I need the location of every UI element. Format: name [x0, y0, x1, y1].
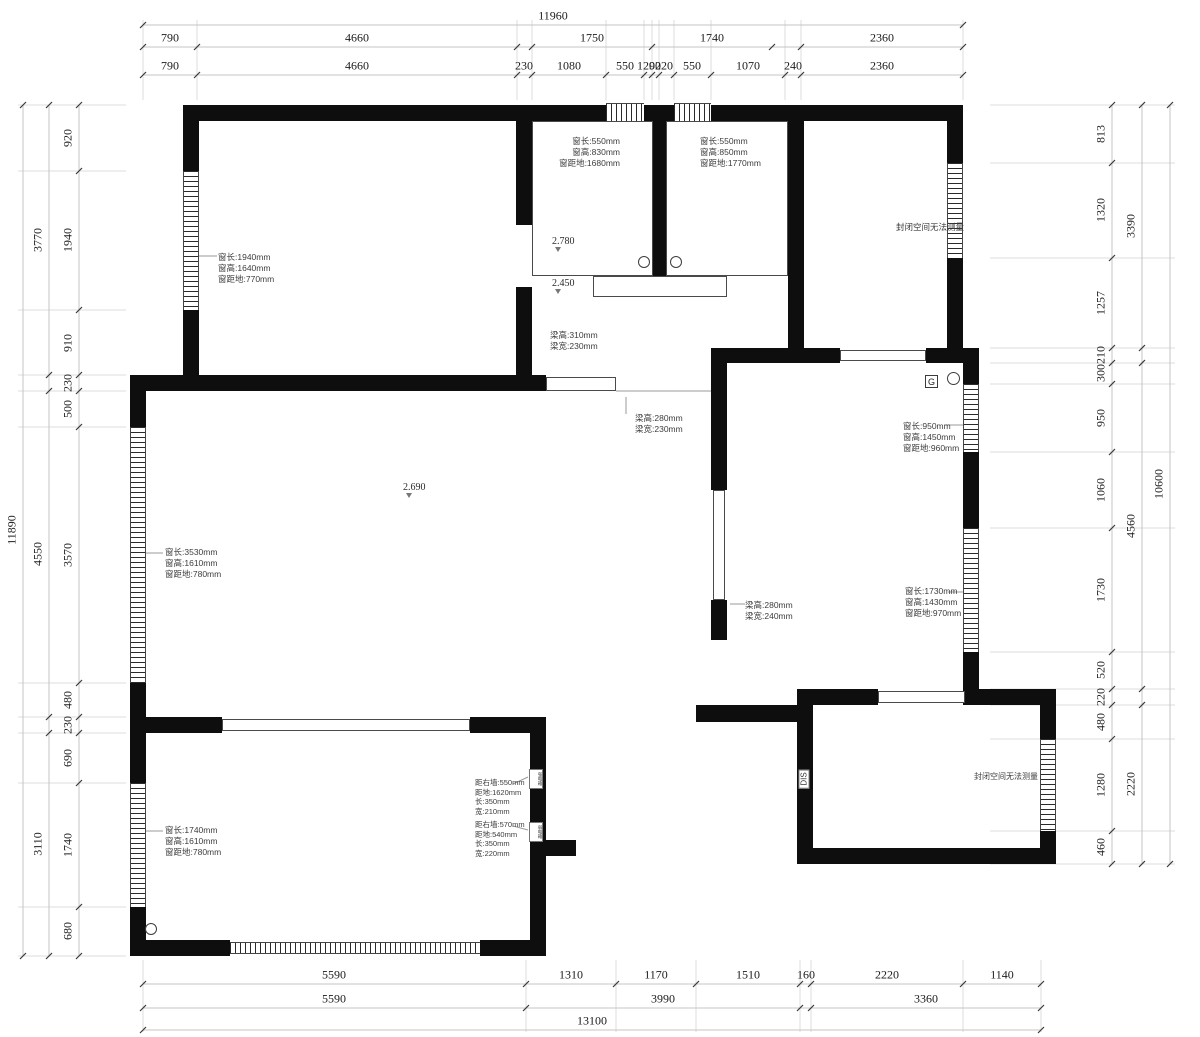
window-closed-space-bottom: [1040, 739, 1056, 831]
window-right-lower: [963, 528, 979, 652]
beam3-outline: [713, 490, 725, 600]
wall-segment: [711, 363, 727, 490]
opening-outline: [840, 350, 926, 361]
strong-current-box: 强电箱: [529, 769, 543, 789]
dim-label: 3990: [651, 992, 675, 1007]
pipe-circle: [145, 923, 157, 935]
dim-label: 1730: [1094, 578, 1109, 602]
dim-label: 910: [61, 334, 76, 352]
annotation-line: 梁高:280mm: [635, 413, 683, 424]
dim-label: 13100: [577, 1014, 607, 1029]
dim-label: 11960: [538, 9, 568, 24]
wall-segment: [516, 287, 532, 375]
annotation-line: 窗高:850mm: [700, 147, 761, 158]
dim-label: 1940: [61, 228, 76, 252]
annotation-line: 窗长:950mm: [903, 421, 959, 432]
wall-segment: [788, 105, 963, 121]
window-closed-space-top: [947, 163, 963, 258]
wall-segment: [470, 717, 546, 733]
dim-label: 1740: [61, 833, 76, 857]
annotation-line: 窗距地:780mm: [165, 847, 221, 858]
elevation-marker: 2.690: [403, 482, 426, 501]
annotation-line: 窗高:1430mm: [905, 597, 961, 608]
elevation-marker: 2.450: [552, 278, 575, 297]
annotation-line: 窗高:1640mm: [218, 263, 274, 274]
window-bottom-left-room: [130, 783, 146, 907]
elec-box-annotation-low: 距右墙:570mm 距地:540mm 长:350mm 宽:220mm: [475, 820, 525, 858]
dim-label: 460: [1094, 838, 1109, 856]
wall-segment: [644, 105, 674, 121]
wall-segment: [696, 705, 813, 722]
beam-annotation-3: 梁高:280mm 梁宽:240mm: [745, 600, 793, 622]
beam1-outline: [546, 377, 616, 391]
dim-label: 790: [161, 31, 179, 46]
dim-label: 950: [1094, 409, 1109, 427]
wall-segment: [963, 652, 979, 689]
annotation-line: 窗距地:1680mm: [540, 158, 620, 169]
annotation-line: 窗长:1730mm: [905, 586, 961, 597]
dim-label: 1140: [990, 968, 1014, 983]
annotation-line: 梁宽:230mm: [635, 424, 683, 435]
dim-label: 480: [1094, 713, 1109, 731]
beam-annotation-2: 梁高:280mm 梁宽:230mm: [635, 413, 683, 435]
annotation-line: 距地:1620mm: [475, 788, 525, 798]
wall-segment: [653, 121, 666, 276]
dim-label: 790: [161, 59, 179, 74]
dim-label: 3110: [31, 832, 46, 856]
wall-segment: [711, 600, 727, 640]
dim-label: 5590: [322, 968, 346, 983]
wall-segment: [963, 363, 979, 384]
annotation-line: 距右墙:570mm: [475, 820, 525, 830]
wall-segment: [530, 733, 546, 956]
dim-label: 2360: [870, 59, 894, 74]
dim-label: 210: [1094, 346, 1109, 364]
wall-segment: [183, 121, 199, 171]
dim-label: 1257: [1094, 291, 1109, 315]
dim-label: 680: [61, 922, 76, 940]
closed-space-note-bottom: 封闭空间无法测量: [974, 771, 1038, 782]
wall-segment: [130, 940, 230, 956]
dim-label: 1740: [700, 31, 724, 46]
annotation-line: 窗高:1450mm: [903, 432, 959, 443]
elevation-triangle-icon: [555, 289, 561, 297]
wall-segment: [947, 258, 963, 348]
closed-space-note-top: 封闭空间无法测量: [896, 221, 964, 233]
dim-label: 1060: [1094, 478, 1109, 502]
dim-label: 4560: [1124, 514, 1139, 538]
dim-label: 220: [1094, 688, 1109, 706]
elevation-value: 2.690: [403, 482, 426, 493]
weak-current-box: 弱电箱: [529, 822, 543, 842]
annotation-line: 窗长:1740mm: [165, 825, 221, 836]
wall-segment: [788, 121, 804, 348]
dim-label: 1170: [644, 968, 668, 983]
dim-label: 1310: [559, 968, 583, 983]
opening-outline: [878, 691, 965, 703]
dim-label: 2360: [870, 31, 894, 46]
window-annotation-bath2: 窗长:550mm 窗高:850mm 窗距地:1770mm: [700, 136, 761, 169]
dim-label: 1320: [1094, 198, 1109, 222]
dim-label: 230: [61, 716, 76, 734]
annotation-line: 窗长:550mm: [700, 136, 761, 147]
wall-segment: [130, 375, 546, 391]
dim-label: 2220: [1124, 772, 1139, 796]
dim-label: 3770: [31, 228, 46, 252]
elec-box-annotation-high: 距右墙:550mm 距地:1620mm 长:350mm 宽:210mm: [475, 778, 525, 816]
dim-label: 2220: [875, 968, 899, 983]
dim-label: 1080: [557, 59, 581, 74]
floor-plan-canvas: G DIS 强电箱 弱电箱 窗长:1940mm 窗高:1640mm 窗距地:77…: [0, 0, 1200, 1037]
annotation-line: 窗长:3530mm: [165, 547, 221, 558]
threshold-outline: [593, 276, 727, 297]
wall-segment: [183, 310, 199, 375]
wall-segment: [963, 689, 1056, 705]
annotation-line: 窗高:830mm: [540, 147, 620, 158]
wall-segment: [516, 121, 532, 225]
dim-label: 5590: [322, 992, 346, 1007]
wall-segment: [130, 391, 146, 427]
wall-segment: [947, 121, 963, 163]
window-annotation-right-lower: 窗长:1730mm 窗高:1430mm 窗距地:970mm: [905, 586, 961, 619]
dim-label: 300: [1094, 364, 1109, 382]
dim-label: 550: [616, 59, 634, 74]
wall-segment: [797, 848, 1056, 864]
wall-segment: [130, 717, 222, 733]
dim-label: 4660: [345, 31, 369, 46]
annotation-line: 梁高:280mm: [745, 600, 793, 611]
annotation-line: 窗长:1940mm: [218, 252, 274, 263]
annotation-line: 窗距地:960mm: [903, 443, 959, 454]
dim-label: 230: [515, 59, 533, 74]
beam-annotation-1: 梁高:310mm 梁宽:230mm: [550, 330, 598, 352]
dim-label: 4550: [31, 542, 46, 566]
annotation-line: 宽:210mm: [475, 807, 525, 817]
dim-label: 1070: [736, 59, 760, 74]
dim-label: 500: [61, 400, 76, 418]
pipe-circle: [670, 256, 682, 268]
wall-segment: [546, 840, 576, 856]
annotation-line: 窗长:550mm: [540, 136, 620, 147]
dim-label: 520: [1094, 661, 1109, 679]
annotation-line: 距右墙:550mm: [475, 778, 525, 788]
dim-label: 550: [683, 59, 701, 74]
window-annotation-bottom-left-room: 窗长:1740mm 窗高:1610mm 窗距地:780mm: [165, 825, 221, 858]
dim-label: 920: [61, 129, 76, 147]
wall-segment: [130, 733, 146, 783]
wall-segment: [130, 683, 146, 717]
dim-label: 160: [797, 968, 815, 983]
elevation-value: 2.450: [552, 278, 575, 289]
annotation-line: 长:350mm: [475, 797, 525, 807]
wall-segment: [532, 105, 606, 121]
elevation-triangle-icon: [555, 247, 561, 255]
annotation-line: 梁宽:230mm: [550, 341, 598, 352]
annotation-line: 窗距地:770mm: [218, 274, 274, 285]
annotation-line: 梁宽:240mm: [745, 611, 793, 622]
dim-label: 220: [655, 59, 673, 74]
dim-label: 690: [61, 749, 76, 767]
dis-marker: DIS: [799, 769, 810, 788]
dim-label: 480: [61, 691, 76, 709]
wall-segment: [183, 105, 532, 121]
annotation-line: 窗距地:1770mm: [700, 158, 761, 169]
window-right-upper: [963, 384, 979, 452]
wall-segment: [926, 348, 979, 363]
pipe-circle: [638, 256, 650, 268]
dim-label: 240: [784, 59, 802, 74]
dim-label: 4660: [345, 59, 369, 74]
window-annotation-top-left-room: 窗长:1940mm 窗高:1640mm 窗距地:770mm: [218, 252, 274, 285]
annotation-line: 宽:220mm: [475, 849, 525, 859]
wall-segment: [963, 452, 979, 528]
window-bottom-wall: [230, 942, 480, 954]
dim-label: 1510: [736, 968, 760, 983]
dim-label: 3570: [61, 543, 76, 567]
elevation-triangle-icon: [406, 493, 412, 501]
window-annotation-right-upper: 窗长:950mm 窗高:1450mm 窗距地:960mm: [903, 421, 959, 454]
annotation-line: 窗高:1610mm: [165, 836, 221, 847]
dim-label: 10600: [1152, 469, 1167, 499]
window-annotation-bath1: 窗长:550mm 窗高:830mm 窗距地:1680mm: [540, 136, 620, 169]
dim-label: 11890: [5, 515, 20, 545]
annotation-line: 梁高:310mm: [550, 330, 598, 341]
annotation-line: 长:350mm: [475, 839, 525, 849]
opening-outline: [222, 719, 470, 731]
pipe-circle: [947, 372, 960, 385]
dim-label: 1750: [580, 31, 604, 46]
wall-segment: [711, 348, 840, 363]
elevation-marker: 2.780: [552, 236, 575, 255]
dim-label: 3390: [1124, 214, 1139, 238]
dim-label: 813: [1094, 125, 1109, 143]
wall-segment: [797, 689, 878, 705]
annotation-line: 窗距地:780mm: [165, 569, 221, 580]
annotation-line: 窗高:1610mm: [165, 558, 221, 569]
dim-label: 230: [61, 374, 76, 392]
wall-segment: [711, 105, 788, 121]
window-living: [130, 427, 146, 683]
window-top-left-room: [183, 171, 199, 310]
dim-label: 1280: [1094, 773, 1109, 797]
elevation-value: 2.780: [552, 236, 575, 247]
annotation-line: 距地:540mm: [475, 830, 525, 840]
wall-segment: [1040, 705, 1056, 739]
gas-marker: G: [925, 375, 938, 388]
dim-label: 3360: [914, 992, 938, 1007]
window-annotation-living: 窗长:3530mm 窗高:1610mm 窗距地:780mm: [165, 547, 221, 580]
annotation-line: 窗距地:970mm: [905, 608, 961, 619]
